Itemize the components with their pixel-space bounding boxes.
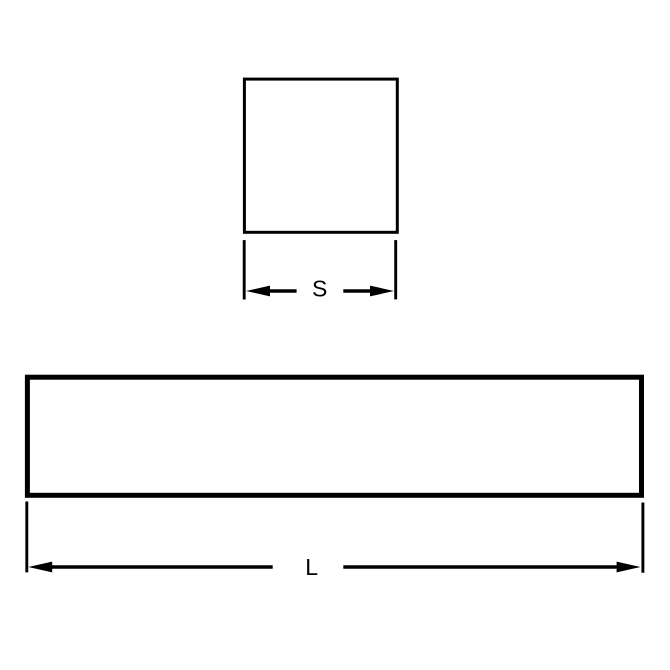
- svg-text:L: L: [305, 554, 318, 580]
- svg-text:S: S: [312, 276, 327, 302]
